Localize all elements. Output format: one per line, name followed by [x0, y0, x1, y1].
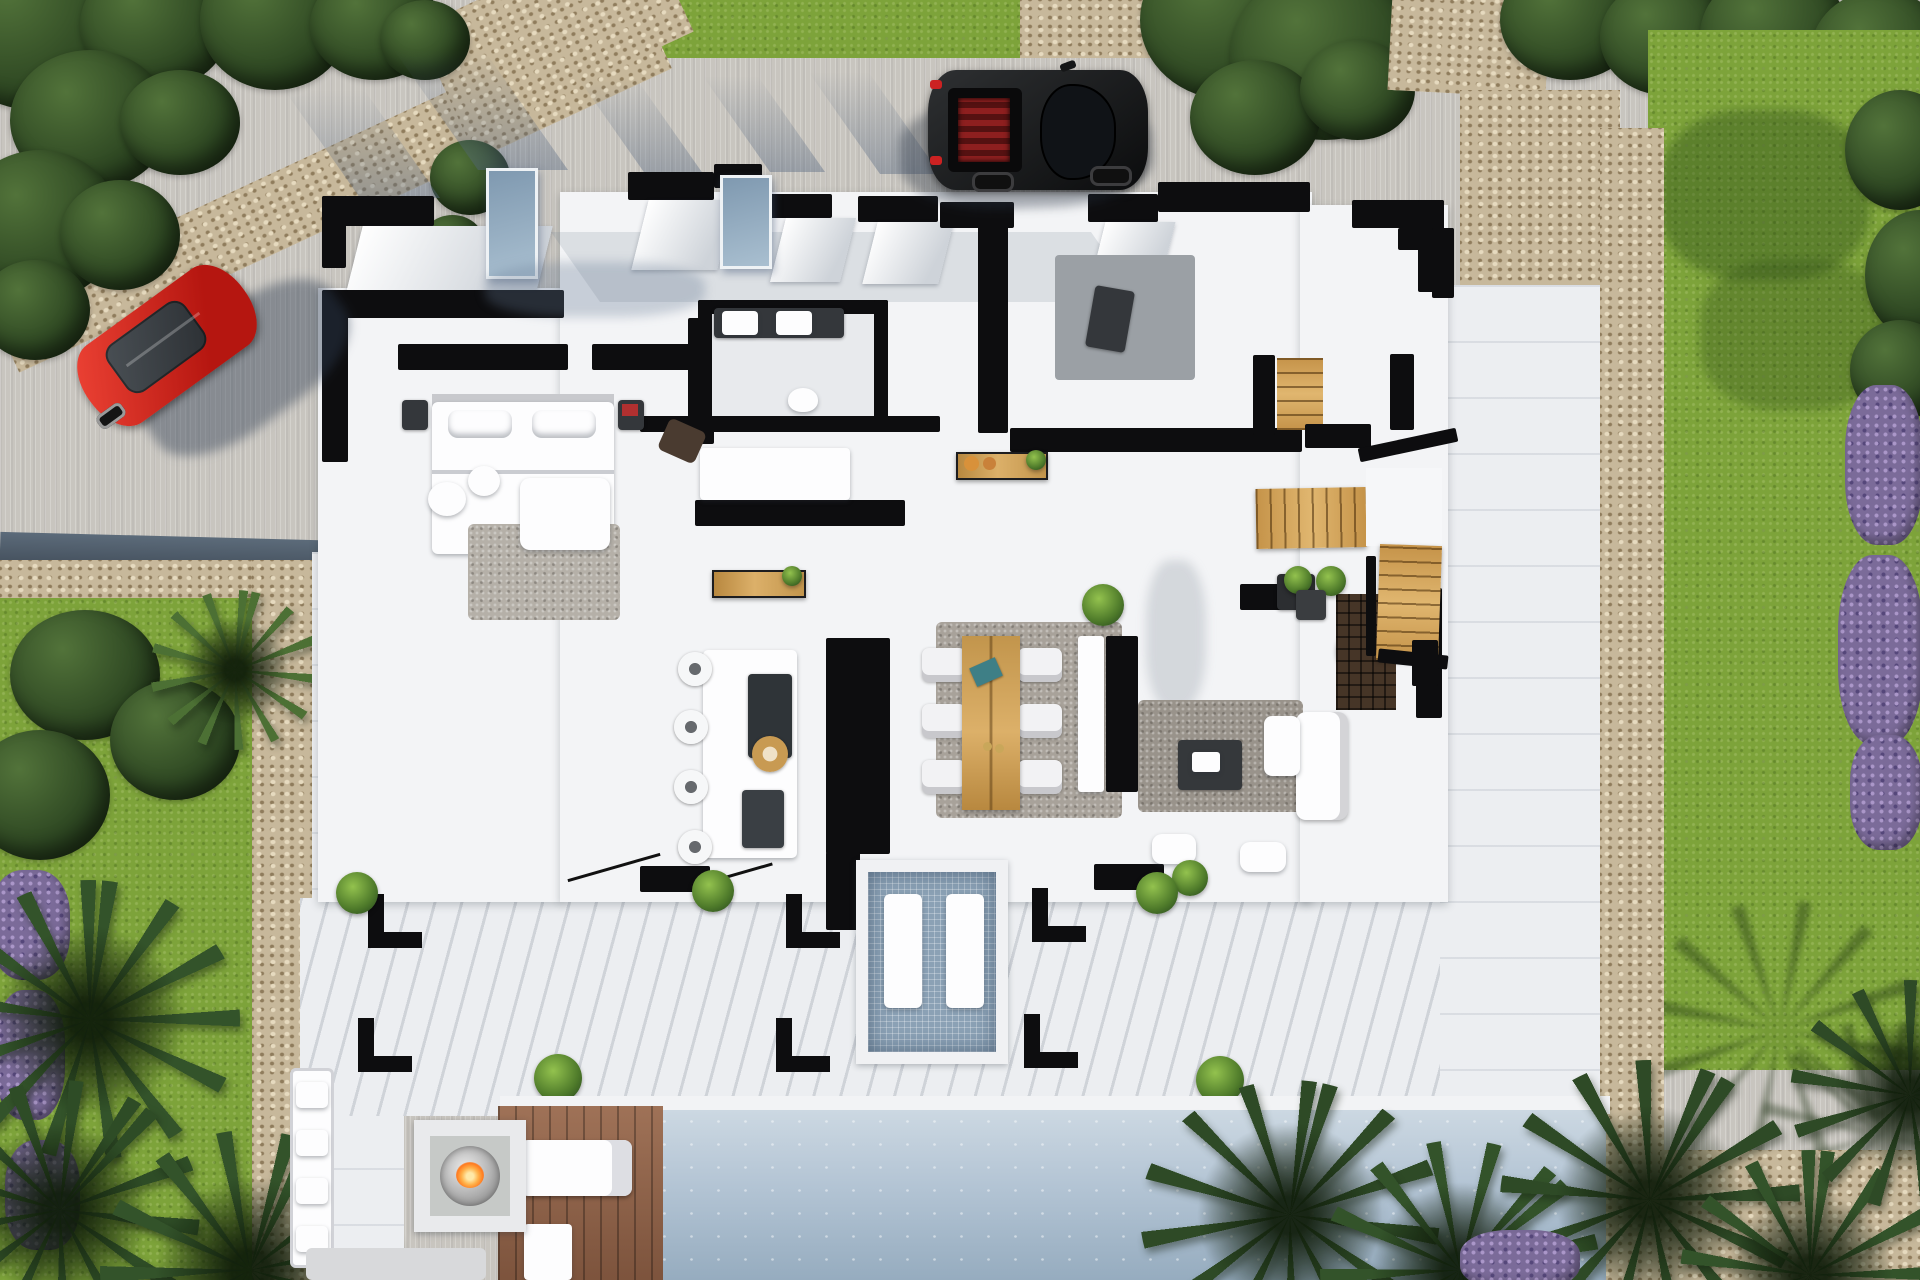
- wall-cap: [768, 194, 832, 218]
- glass-skylight: [720, 175, 772, 269]
- potted-plant: [782, 566, 802, 586]
- step-marker: [786, 894, 840, 948]
- tv-wall-panel: [1106, 636, 1138, 792]
- wall: [826, 638, 890, 854]
- wall-cap: [858, 196, 938, 222]
- stair-landing: [1366, 468, 1442, 546]
- wall-cap: [322, 196, 346, 268]
- dining-chair: [922, 704, 966, 738]
- pouf: [428, 482, 466, 516]
- bar-stool: [674, 770, 708, 804]
- storage-cabinets: [700, 448, 850, 500]
- nightstand: [402, 400, 428, 430]
- fire-flame: [456, 1162, 484, 1188]
- bed-duvet-fold: [432, 470, 614, 474]
- fire-table-tray: [1192, 752, 1220, 772]
- step-marker: [1024, 1014, 1078, 1068]
- stair-upper-flight: [1277, 358, 1323, 430]
- skylight-floor-shadow: [485, 262, 705, 317]
- stair-wall: [1305, 424, 1371, 448]
- step-marker: [1032, 888, 1086, 942]
- red-wall-art: [622, 404, 638, 416]
- terrace-plant: [336, 872, 378, 914]
- car-engine-red: [958, 98, 1010, 162]
- tree-shadow: [1660, 110, 1870, 280]
- stair-flight-horizontal: [1255, 487, 1366, 549]
- stair-wall: [1412, 640, 1438, 686]
- lavender-bed: [1838, 555, 1920, 745]
- bathroom-wall: [874, 300, 888, 432]
- step-marker: [358, 1018, 412, 1072]
- stair-handrail: [1366, 556, 1376, 656]
- stone-border-right-top: [1460, 90, 1620, 300]
- lavender-bed: [1845, 385, 1920, 545]
- interior-shadow: [1146, 560, 1206, 710]
- side-table: [520, 478, 610, 550]
- jacuzzi-lounger: [884, 894, 922, 1008]
- dining-chair: [922, 760, 966, 794]
- potted-plant: [1082, 584, 1124, 626]
- car-taillight: [930, 156, 942, 165]
- dining-chair: [1018, 760, 1062, 794]
- fruit-plate: [983, 457, 996, 470]
- shrub: [120, 70, 240, 175]
- car-wheel: [972, 172, 1014, 192]
- stair-wall: [1390, 354, 1414, 430]
- step-marker: [776, 1018, 830, 1072]
- dining-chair: [922, 648, 966, 682]
- wall-cap: [1432, 228, 1454, 298]
- dining-chair: [1018, 704, 1062, 738]
- bench-pillow: [296, 1178, 328, 1204]
- bathroom-wall: [698, 300, 712, 432]
- bed-pillow: [448, 410, 512, 438]
- wall: [592, 344, 696, 370]
- wooden-bowl: [752, 736, 788, 772]
- potted-plant: [1026, 450, 1046, 470]
- x-plant-stand: [1296, 590, 1326, 620]
- terrace-plant: [692, 870, 734, 912]
- car-wheel: [1090, 166, 1132, 186]
- glass-skylight: [486, 168, 538, 279]
- olive-tree-canopy: [1190, 60, 1320, 175]
- toilet: [788, 388, 818, 412]
- bar-stool: [678, 830, 712, 864]
- pouf: [1240, 842, 1286, 872]
- sun-lounger: [520, 1140, 632, 1196]
- dining-chair: [1018, 648, 1062, 682]
- villa-floorplan-render: [0, 0, 1920, 1280]
- wall: [695, 500, 905, 526]
- wall: [978, 205, 1008, 433]
- fruit-plate: [964, 456, 979, 471]
- car-taillight: [930, 80, 942, 89]
- jacuzzi-lounger: [946, 894, 984, 1008]
- tv-cabinet: [1078, 636, 1104, 792]
- stair-wall: [1253, 355, 1275, 435]
- table-candles: [983, 742, 992, 751]
- terrace-plant: [1136, 872, 1178, 914]
- bathroom-sink: [776, 311, 812, 335]
- sofa: [1296, 712, 1348, 820]
- bench-bottom: [306, 1248, 486, 1280]
- pouf: [468, 466, 500, 496]
- kitchen-sink: [742, 790, 784, 848]
- lavender-bed: [1460, 1230, 1580, 1280]
- sofa-chaise: [1264, 716, 1300, 776]
- bar-stool: [674, 710, 708, 744]
- bar-stool: [678, 652, 712, 686]
- wall: [398, 344, 568, 370]
- step-marker: [368, 894, 422, 948]
- deck-side-table: [524, 1224, 572, 1280]
- wall-cap: [1158, 182, 1310, 212]
- bench-pillow: [296, 1082, 328, 1108]
- bench-pillow: [296, 1130, 328, 1156]
- lavender-bed: [1850, 735, 1920, 850]
- bathroom-sink: [722, 311, 758, 335]
- wall-cap: [628, 172, 714, 200]
- shrub: [60, 180, 180, 290]
- terrace-plant: [534, 1054, 582, 1102]
- bed-pillow: [532, 410, 596, 438]
- wall-3d: [862, 222, 953, 284]
- yucca-palm: [150, 590, 320, 750]
